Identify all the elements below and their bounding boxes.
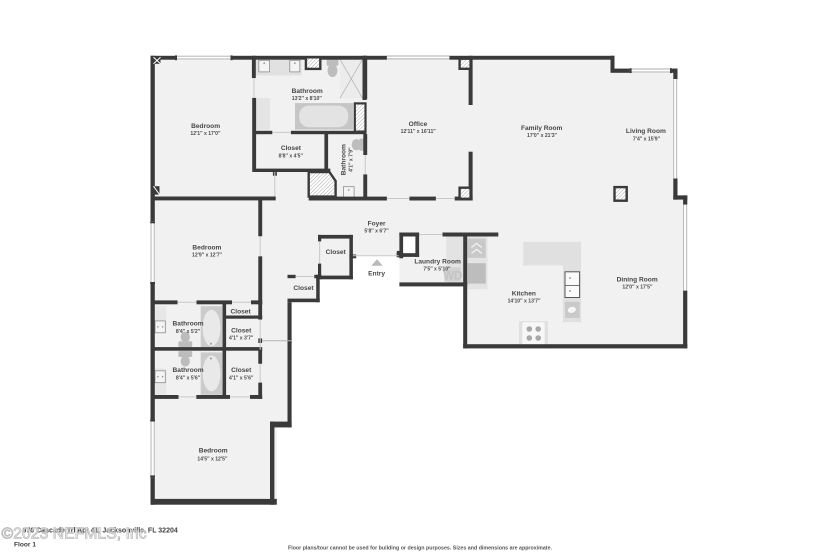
svg-text:12′11″ x 16′11″: 12′11″ x 16′11″ [401, 129, 437, 135]
svg-text:Living Room: Living Room [626, 128, 666, 135]
svg-text:Laundry Room: Laundry Room [414, 259, 461, 266]
svg-text:Closet: Closet [281, 145, 302, 152]
svg-text:Bathroom: Bathroom [341, 144, 348, 175]
svg-text:13′2″ x 8′10″: 13′2″ x 8′10″ [292, 96, 323, 102]
svg-text:Bedroom: Bedroom [191, 123, 220, 130]
svg-text:Foyer: Foyer [368, 220, 386, 227]
svg-text:Bedroom: Bedroom [192, 245, 221, 252]
svg-text:Floor 1: Floor 1 [14, 542, 36, 549]
svg-text:8′4″ x 5′6″: 8′4″ x 5′6″ [176, 375, 201, 381]
svg-text:8′8″ x 4′5″: 8′8″ x 4′5″ [279, 153, 304, 159]
svg-text:Closet: Closet [231, 367, 252, 374]
svg-text:8′4″ x 5′2″: 8′4″ x 5′2″ [176, 329, 201, 335]
svg-text:14′5″ x 12′5″: 14′5″ x 12′5″ [197, 457, 228, 463]
svg-text:5′8″ x 6′7″: 5′8″ x 6′7″ [364, 229, 389, 235]
svg-text:Floor plans/tour cannot be use: Floor plans/tour cannot be used for buil… [288, 546, 553, 552]
svg-text:Closet: Closet [231, 327, 252, 334]
svg-text:Bedroom: Bedroom [199, 448, 228, 455]
svg-text:Family Room: Family Room [521, 125, 563, 132]
svg-text:Entry: Entry [368, 271, 385, 278]
svg-text:Closet: Closet [231, 308, 252, 315]
svg-text:Office: Office [409, 121, 428, 128]
svg-text:Dining Room: Dining Room [617, 277, 658, 284]
svg-text:7′5″ x 5′10″: 7′5″ x 5′10″ [423, 267, 451, 273]
svg-text:Kitchen: Kitchen [512, 290, 536, 297]
svg-text:4′1″ x 7′9″: 4′1″ x 7′9″ [349, 147, 355, 172]
svg-text:4′1″ x 3′7″: 4′1″ x 3′7″ [229, 335, 254, 341]
svg-text:©2023 NEFMLS, Inc: ©2023 NEFMLS, Inc [2, 526, 147, 543]
svg-text:Bathroom: Bathroom [292, 88, 323, 95]
svg-text:17′0″ x 21′3″: 17′0″ x 21′3″ [527, 133, 558, 139]
svg-text:12′9″ x 12′7″: 12′9″ x 12′7″ [192, 253, 223, 259]
svg-text:14′10″ x 13′7″: 14′10″ x 13′7″ [508, 298, 541, 304]
svg-text:Closet: Closet [326, 249, 347, 256]
svg-text:12′1″ x 17′0″: 12′1″ x 17′0″ [190, 131, 221, 137]
svg-text:Bathroom: Bathroom [173, 321, 204, 328]
svg-text:12′0″ x 17′5″: 12′0″ x 17′5″ [622, 285, 653, 291]
svg-text:4′1″ x 5′6″: 4′1″ x 5′6″ [229, 375, 254, 381]
svg-text:Bathroom: Bathroom [173, 367, 204, 374]
svg-text:7′4″ x 15′9″: 7′4″ x 15′9″ [633, 136, 661, 142]
svg-text:Closet: Closet [293, 285, 314, 292]
